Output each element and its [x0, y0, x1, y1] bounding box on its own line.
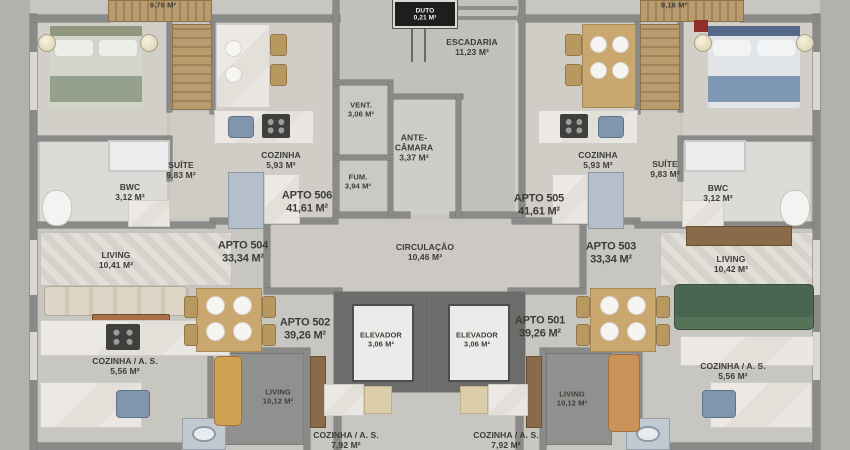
- vent-room-floor: [338, 84, 390, 156]
- toilet-left: [42, 190, 72, 226]
- room-area: 10,42 M²: [714, 265, 748, 275]
- room-area: 10,46 M²: [396, 253, 454, 263]
- room-area: 5,93 M²: [578, 161, 617, 171]
- plate: [600, 296, 619, 315]
- room-area: 9,83 M²: [650, 170, 680, 180]
- label-circulacao: CIRCULAÇÃO 10,46 M²: [396, 243, 454, 263]
- label-bwc-right: BWC 3,12 M²: [703, 184, 733, 204]
- unit-name: APTO 504: [218, 239, 268, 252]
- shower-right: [684, 140, 746, 172]
- chair: [576, 296, 590, 318]
- toilet-right: [780, 190, 810, 226]
- sofa-504: [44, 286, 188, 316]
- sink-504: [116, 390, 150, 418]
- room-area: 3,12 M²: [703, 194, 733, 204]
- fridge-right: [588, 172, 624, 229]
- plate: [206, 296, 225, 315]
- pillow: [757, 40, 795, 56]
- bed-right-headboard: [708, 26, 800, 36]
- wall: [333, 0, 339, 218]
- room-area: 5,56 M²: [92, 367, 158, 377]
- room-area: 10,12 M²: [557, 399, 587, 408]
- room-area: 3,37 M²: [395, 153, 433, 163]
- counter-501-b: [460, 386, 488, 414]
- closet-left: [172, 24, 212, 110]
- unit-name: APTO 505: [514, 192, 564, 205]
- living-504-marble-floor: [40, 232, 232, 286]
- room-area: 3,06 M²: [348, 110, 374, 119]
- label-elevador-2: ELEVADOR 3,06 M²: [456, 331, 498, 348]
- dining-table-503: [590, 288, 656, 352]
- duct-line: [411, 26, 413, 62]
- room-area: 9,16 M²: [661, 2, 687, 11]
- chair: [656, 324, 670, 346]
- label-vent: VENT. 3,06 M²: [348, 101, 374, 118]
- room-area: 7,92 M²: [313, 441, 379, 450]
- room-area: 0,21 M²: [414, 15, 437, 22]
- chair: [270, 64, 287, 86]
- label-living-504: LIVING 10,41 M²: [99, 251, 133, 271]
- window: [30, 240, 37, 295]
- stair-rail: [455, 6, 517, 10]
- wall: [388, 82, 393, 218]
- label-living-501: LIVING 10,12 M²: [557, 390, 587, 407]
- room-area: 3,06 M²: [456, 340, 498, 349]
- sink-503: [702, 390, 736, 418]
- label-suite-right: SUÍTE 9,83 M²: [650, 160, 680, 180]
- label-elevador-1: ELEVADOR 3,06 M²: [360, 331, 402, 348]
- wall: [333, 80, 393, 85]
- label-living-503: LIVING 10,42 M²: [714, 255, 748, 275]
- label-escadaria: ESCADARIA 11,23 M²: [446, 38, 497, 58]
- chair: [262, 296, 276, 318]
- chair: [270, 34, 287, 56]
- label-apto-503: APTO 503 33,34 M²: [586, 240, 636, 265]
- kitchen-left-stove: [262, 114, 290, 138]
- room-area: 10,41 M²: [99, 261, 133, 271]
- plate: [627, 296, 646, 315]
- unit-name: APTO 503: [586, 240, 636, 253]
- chair: [262, 324, 276, 346]
- stair-rail: [455, 16, 517, 20]
- window: [30, 332, 37, 380]
- bwc-left-vanity: [128, 200, 170, 227]
- room-area: 5,56 M²: [700, 372, 766, 382]
- unit-name: APTO 506: [282, 189, 332, 202]
- wall: [264, 288, 342, 294]
- kitchen-left-island: [216, 24, 270, 108]
- plate: [233, 296, 252, 315]
- room-area: 3,12 M²: [115, 193, 145, 203]
- room-name: DUTO: [414, 8, 437, 15]
- wall: [388, 94, 463, 99]
- floor-plan: DUTO 0,21 M² ESCADA: [0, 0, 850, 450]
- plate: [590, 36, 607, 53]
- tv-console-503: [686, 226, 792, 246]
- label-antecamara: ANTE- CÂMARA 3,37 M²: [395, 133, 433, 162]
- wall: [518, 15, 640, 22]
- bedside-lamp: [140, 34, 158, 52]
- label-cozinha-right: COZINHA 5,93 M²: [578, 151, 617, 171]
- kitchen-right-stove: [560, 114, 588, 138]
- sofa-503: [674, 284, 814, 330]
- bed-left-throw: [50, 76, 142, 102]
- bedside-lamp: [694, 34, 712, 52]
- label-living-502: LIVING 10,12 M²: [263, 388, 293, 405]
- bed-right-throw: [708, 76, 800, 102]
- label-apto-501: APTO 501 39,26 M²: [515, 314, 565, 339]
- unit-area: 39,26 M²: [280, 329, 330, 342]
- unit-area: 33,34 M²: [218, 252, 268, 265]
- window: [813, 240, 820, 295]
- red-accent: [694, 20, 708, 32]
- room-area: 10,12 M²: [263, 397, 293, 406]
- chair: [184, 324, 198, 346]
- pillow: [99, 40, 137, 56]
- wall: [333, 212, 410, 218]
- plate: [600, 322, 619, 341]
- wall: [210, 15, 340, 22]
- chair: [184, 296, 198, 318]
- bwc-right-vanity: [682, 200, 724, 227]
- label-apto-502: APTO 502 39,26 M²: [280, 316, 330, 341]
- counter-502-b: [364, 386, 392, 414]
- plate: [627, 322, 646, 341]
- plate: [612, 62, 629, 79]
- chaise-501: [608, 354, 640, 432]
- chair: [656, 296, 670, 318]
- label-suite-left: SUÍTE 9,83 M²: [166, 161, 196, 181]
- room-area: 9,83 M²: [166, 171, 196, 181]
- label-apto-505: APTO 505 41,61 M²: [514, 192, 564, 217]
- plate: [233, 322, 252, 341]
- window: [30, 52, 37, 110]
- dining-table-504: [196, 288, 262, 352]
- label-apto-504: APTO 504 33,34 M²: [218, 239, 268, 264]
- label-bwc-left: BWC 3,12 M²: [115, 183, 145, 203]
- shower-left: [108, 140, 170, 172]
- label-cozinha-as-504: COZINHA / A. S. 5,56 M²: [92, 357, 158, 377]
- wall: [30, 15, 110, 22]
- chaise-502: [214, 356, 242, 426]
- chair: [576, 324, 590, 346]
- bed-left-headboard: [50, 26, 142, 36]
- label-cozinha-as-502: COZINHA / A. S. 7,92 M²: [313, 431, 379, 450]
- label-cozinha-left: COZINHA 5,93 M²: [261, 151, 300, 171]
- unit-area: 41,61 M²: [282, 202, 332, 215]
- room-area: 11,23 M²: [446, 48, 497, 58]
- duto-box: DUTO 0,21 M²: [393, 0, 457, 28]
- fridge-left: [228, 172, 264, 229]
- kitchen-right-sink: [598, 116, 624, 138]
- wardrobe-right: [640, 0, 744, 22]
- wall: [456, 94, 461, 218]
- plate: [590, 62, 607, 79]
- duct-line: [424, 26, 426, 62]
- unit-area: 33,34 M²: [586, 253, 636, 266]
- label-apto-506: APTO 506 41,61 M²: [282, 189, 332, 214]
- room-area: 9,76 M²: [150, 2, 176, 11]
- window: [813, 332, 820, 380]
- unit-name: APTO 501: [515, 314, 565, 327]
- counter-502: [324, 384, 364, 416]
- room-area: 7,92 M²: [473, 441, 539, 450]
- wall: [740, 15, 820, 22]
- label-cozinha-as-503: COZINHA / A. S. 5,56 M²: [700, 362, 766, 382]
- closet-right: [640, 24, 680, 110]
- pillow: [713, 40, 751, 56]
- unit-name: APTO 502: [280, 316, 330, 329]
- label-cozinha-as-501: COZINHA / A. S. 7,92 M²: [473, 431, 539, 450]
- window: [813, 52, 820, 110]
- bedside-lamp: [796, 34, 814, 52]
- unit-area: 39,26 M²: [515, 327, 565, 340]
- wall: [333, 155, 393, 160]
- plate: [612, 36, 629, 53]
- room-area: 5,93 M²: [261, 161, 300, 171]
- plate: [225, 66, 242, 83]
- kitchen-left-sink: [228, 116, 254, 138]
- plate: [206, 322, 225, 341]
- label-closet-left-area: 9,76 M²: [150, 2, 176, 11]
- chair: [565, 64, 582, 86]
- label-fum: FUM. 3,94 M²: [345, 173, 371, 190]
- counter-501: [488, 384, 528, 416]
- label-duto: DUTO 0,21 M²: [414, 8, 437, 23]
- pillow: [55, 40, 93, 56]
- stove-504: [106, 324, 140, 350]
- wall: [519, 0, 525, 218]
- cabinet-501: [526, 356, 542, 428]
- label-closet-right-area: 9,16 M²: [661, 2, 687, 11]
- room-area: 3,94 M²: [345, 182, 371, 191]
- room-area: 3,06 M²: [360, 340, 402, 349]
- bedside-lamp: [38, 34, 56, 52]
- plate: [225, 40, 242, 57]
- unit-area: 41,61 M²: [514, 205, 564, 218]
- chair: [565, 34, 582, 56]
